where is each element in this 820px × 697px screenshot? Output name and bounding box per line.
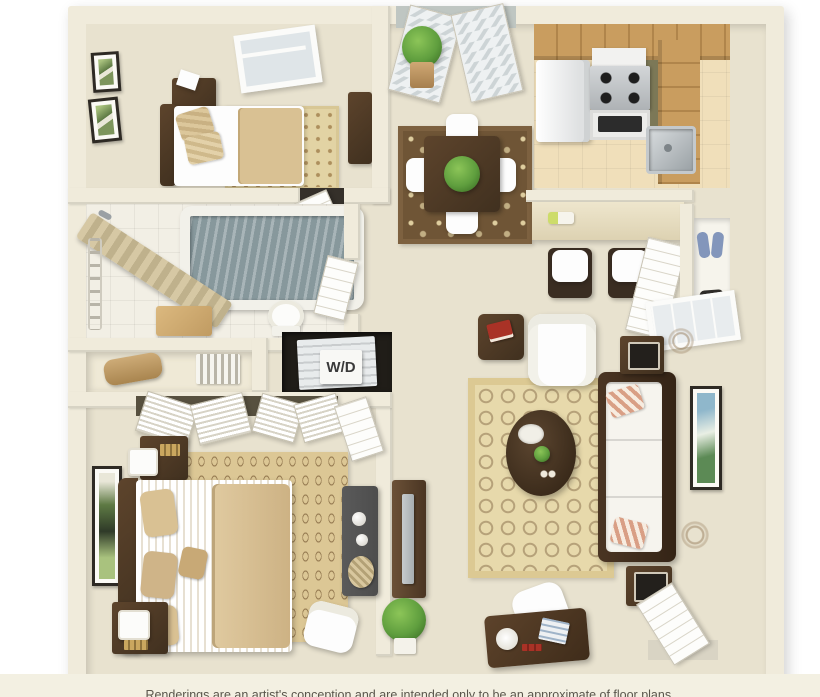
floor-plan-screenshot: W/D [0, 0, 820, 697]
end-table-north-tray [628, 342, 660, 370]
living-wall-art [690, 386, 722, 490]
wall-medallion-lower [680, 518, 710, 552]
stove-cooktop [590, 66, 650, 110]
oven-window [598, 116, 642, 132]
bedroom2-wall-art-1 [91, 51, 122, 93]
wall-bedroom2-south-right [344, 188, 390, 204]
dresser-decor-sphere-2 [356, 534, 368, 546]
linen-closet-rack [196, 354, 240, 384]
living-floor-plant [382, 598, 426, 642]
bedroom2-window [233, 25, 322, 94]
sink-faucet [664, 144, 672, 152]
coffee-table-candles [540, 470, 556, 478]
bathroom-shelf [156, 306, 212, 336]
wall-medallion-upper [666, 326, 696, 356]
master-lamp-south [118, 610, 150, 640]
wall-bedroom2-dining [372, 6, 390, 204]
balcony-plant-pot [410, 62, 434, 88]
wd-label-text: W/D [326, 359, 355, 376]
dresser-decor-sphere-1 [352, 512, 366, 526]
master-duvet [212, 484, 290, 648]
armchair [528, 314, 596, 386]
towel-ladder [88, 238, 102, 330]
bedroom2-dresser [348, 92, 372, 164]
coffee-table-tray [518, 424, 544, 444]
wall-breakfast-bar [526, 190, 694, 202]
bar-stool-1-cushion [552, 250, 588, 282]
tv-screen [402, 494, 414, 584]
master-books-north [160, 444, 180, 456]
master-pillow-2 [140, 550, 179, 599]
bedroom2-duvet [238, 108, 302, 184]
wall-bedroom2-south-left [68, 188, 300, 204]
desk-red-accents [522, 644, 542, 651]
bedroom2-wall-art-2 [88, 97, 122, 144]
bar-counter-items [548, 212, 574, 224]
master-pillow-1 [139, 488, 179, 538]
living-floor-plant-pot [394, 638, 416, 654]
wall-bathroom-east-upper [344, 204, 360, 260]
dining-centerpiece-plant [444, 156, 480, 192]
dresser-basket [348, 556, 374, 588]
desk-lamp [496, 628, 518, 650]
disclaimer-text: Renderings are an artist's conception an… [145, 688, 674, 697]
wall-linen-east [252, 338, 268, 392]
coffee-table-flowers [534, 446, 550, 462]
range-hood [592, 48, 646, 66]
refrigerator [536, 60, 590, 142]
wd-label: W/D [320, 350, 362, 384]
master-lamp-north [128, 448, 158, 476]
master-books-south [124, 640, 148, 650]
